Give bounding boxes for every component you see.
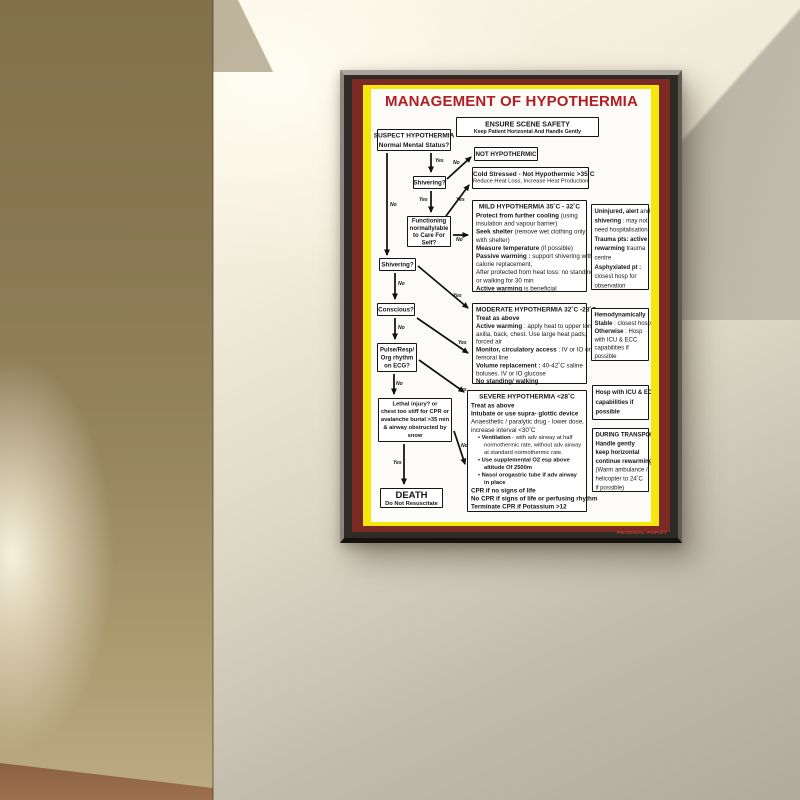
text-line: on ECG? bbox=[384, 362, 410, 370]
edge-label: No bbox=[390, 202, 397, 208]
room-photo: MANAGEMENT OF HYPOTHERMIA bbox=[0, 0, 800, 800]
publisher-credit: PRODIGAL-POPIST bbox=[617, 530, 667, 536]
text-line: closest hosp for bbox=[595, 272, 646, 281]
text-line: Active warming is beneficial bbox=[476, 284, 583, 292]
text-line: Treat as above bbox=[476, 315, 583, 323]
text-line: Stable : closest hosp bbox=[595, 319, 646, 327]
edge-label: Yes bbox=[453, 293, 462, 299]
text-line: Anaesthetic / paralytic drug - lower dos… bbox=[471, 418, 583, 426]
flow-node-moderate-hypothermia: MODERATE HYPOTHERMIA 32˚C -28˚C Treat as… bbox=[472, 303, 587, 384]
left-wall bbox=[0, 0, 213, 800]
flow-node-cold-stressed: Cold Stressed - Not Hypothermic >35˚C Re… bbox=[472, 167, 589, 189]
text-line: & airway obstructed by bbox=[383, 424, 446, 432]
text-line: centre bbox=[595, 253, 646, 262]
node-title: NOT HYPOTHERMIC bbox=[475, 151, 536, 158]
node-title: ENSURE SCENE SAFETY bbox=[485, 120, 570, 129]
node-body: Treat as aboveIntubate or use supra- glo… bbox=[471, 402, 583, 511]
corner-shadow bbox=[213, 0, 313, 72]
flow-node-death: DEATH Do Not Resuscitate bbox=[380, 488, 443, 508]
side-note-uninjured-alert: Uninjured, alert andshivering : may notn… bbox=[591, 204, 649, 290]
text-line: normothermic rate, without adv airway bbox=[471, 441, 583, 449]
text-line: After protected from heat loss: no stand… bbox=[476, 268, 583, 276]
flow-node-mild-hypothermia: MILD HYPOTHERMIA 35˚C - 32˚C Protect fro… bbox=[472, 200, 587, 292]
text-line: increase interval <30˚C bbox=[471, 426, 583, 434]
text-line: Lethal injury? or bbox=[392, 400, 437, 408]
flow-node-pulse-resp-ecg: Pulse/Resp/Org rhythmon ECG? bbox=[377, 343, 417, 372]
poster-yellow-border: MANAGEMENT OF HYPOTHERMIA bbox=[363, 85, 659, 526]
text-line: CPR if no signs of life bbox=[471, 486, 583, 494]
flow-node-suspect-hypothermia: SUSPECT HYPOTHERMIANormal Mental Status? bbox=[377, 129, 451, 151]
flow-node-shivering-1: Shivering? bbox=[413, 176, 446, 189]
node-title: Cold Stressed - Not Hypothermic >35˚C bbox=[473, 170, 588, 179]
flow-node-functioning-normally: Functioningnormally/ableto Care ForSelf? bbox=[407, 216, 451, 247]
node-subtitle: Reduce Heat Loss, Increase Heat Producti… bbox=[473, 178, 588, 184]
text-line: No CPR if signs of life or perfusing rhy… bbox=[471, 495, 583, 503]
text-line: Treat as above bbox=[471, 402, 583, 410]
text-line: chest too stiff for CPR or bbox=[381, 408, 449, 416]
wall-corner bbox=[212, 0, 214, 800]
text-line: Pulse/Resp/ bbox=[380, 346, 414, 354]
text-line: Self? bbox=[422, 239, 437, 246]
edge-label: No bbox=[398, 281, 405, 287]
text-line: Seek shelter (remove wet clothing only bbox=[476, 228, 583, 236]
text-line: Hemodynamically bbox=[595, 311, 646, 319]
text-line: Uninjured, alert and bbox=[595, 207, 646, 216]
node-title: DEATH bbox=[395, 490, 427, 501]
hypothermia-flowchart: MANAGEMENT OF HYPOTHERMIA bbox=[372, 91, 651, 519]
text-line: at standard normothermic rate. bbox=[471, 449, 583, 457]
node-body: Treat as aboveActive warming : apply hea… bbox=[476, 315, 583, 386]
text-line: Asphyxiated pt : bbox=[595, 262, 646, 271]
text-line: Passive warming : support shivering with bbox=[476, 252, 583, 260]
poster-frame: MANAGEMENT OF HYPOTHERMIA bbox=[340, 70, 682, 543]
text-line: Use supplemental O2 esp above bbox=[471, 456, 583, 464]
text-line: Handle gently bbox=[596, 439, 646, 448]
flow-node-conscious: Conscious? bbox=[377, 303, 415, 316]
node-subtitle: Do Not Resuscitate bbox=[385, 500, 438, 506]
flow-node-ensure-scene-safety: ENSURE SCENE SAFETY Keep Patient Horizon… bbox=[456, 117, 599, 137]
text-line: Hosp with ICU & ECC bbox=[596, 388, 646, 398]
text-line: normally/able bbox=[410, 224, 449, 231]
edge-label: Yes bbox=[456, 197, 465, 203]
edge-label: No bbox=[456, 237, 463, 243]
edge-label: No bbox=[398, 325, 405, 331]
text-line: Terminate CPR if Potassium >12 bbox=[471, 503, 583, 511]
text-line: forced air bbox=[476, 338, 583, 346]
text-line: calorie replacement, bbox=[476, 260, 583, 268]
text-line: rewarming trauma bbox=[595, 244, 646, 253]
edge-label: Yes bbox=[435, 158, 444, 164]
node-title: Conscious? bbox=[378, 306, 414, 313]
text-line: continue rewarming bbox=[596, 457, 646, 466]
text-line: helicopter to 24˚C bbox=[596, 474, 646, 483]
node-body: Protect from further cooling (usinginsul… bbox=[476, 212, 583, 293]
flow-node-severe-hypothermia: SEVERE HYPOTHERMIA <28˚C Treat as aboveI… bbox=[467, 390, 587, 512]
text-line: Trauma pts: active bbox=[595, 234, 646, 243]
text-line: shivering : may not bbox=[595, 216, 646, 225]
text-line: Intubate or use supra- glottic device bbox=[471, 410, 583, 418]
text-line: boluses. IV or IO glucose bbox=[476, 370, 583, 378]
text-line: Org rhythm bbox=[381, 354, 414, 362]
text-line: Monitor, circulatory access : IV or IO o… bbox=[476, 346, 583, 354]
text-line: insulation and vapour barrier) bbox=[476, 220, 583, 228]
edge-label: Yes bbox=[458, 387, 467, 393]
text-line: with ICU & ECC bbox=[595, 335, 646, 343]
edge-label: No bbox=[396, 381, 403, 387]
text-line: need hospitalisation bbox=[595, 225, 646, 234]
text-line: snow bbox=[408, 432, 423, 440]
text-line: Functioning bbox=[412, 217, 446, 224]
text-line: Active warming : apply heat to upper tor… bbox=[476, 322, 583, 330]
text-line: observation bbox=[595, 281, 646, 290]
text-line: to Care For bbox=[413, 232, 445, 239]
text-line: Measure temperature (if possible) bbox=[476, 244, 583, 252]
text-line: DURING TRANSPORT bbox=[596, 431, 646, 440]
poster-sheet: MANAGEMENT OF HYPOTHERMIA bbox=[371, 89, 651, 522]
text-line: Naso/ orogastric tube if adv airway bbox=[471, 471, 583, 479]
text-line: No standing/ walking bbox=[476, 378, 583, 386]
edge-label: No bbox=[461, 443, 468, 449]
side-note-hemodynamically-stable: HemodynamicallyStable : closest hospOthe… bbox=[591, 308, 649, 361]
side-note-hosp-icu-ecc: Hosp with ICU & ECCcapabilities ifpossib… bbox=[592, 385, 649, 420]
text-line: Otherwise : Hosp bbox=[595, 327, 646, 335]
node-title: SEVERE HYPOTHERMIA <28˚C bbox=[471, 392, 583, 401]
text-line: altitude Of 2500m bbox=[471, 464, 583, 472]
hypothermia-poster: MANAGEMENT OF HYPOTHERMIA bbox=[340, 70, 682, 543]
text-line: with shelter) bbox=[476, 236, 583, 244]
flow-node-not-hypothermic: NOT HYPOTHERMIC bbox=[474, 147, 538, 161]
poster-maroon-border: MANAGEMENT OF HYPOTHERMIA bbox=[352, 79, 670, 532]
text-line: SUSPECT HYPOTHERMIA bbox=[374, 131, 455, 141]
text-line: possible bbox=[595, 352, 646, 360]
text-line: avalanche burial >35 min bbox=[381, 416, 449, 424]
node-title: Shivering? bbox=[413, 179, 445, 186]
edge-label: Yes bbox=[393, 460, 402, 466]
text-line: or walking for 30 min bbox=[476, 276, 583, 284]
edge-label: No bbox=[453, 160, 460, 166]
text-line: capabilities if bbox=[596, 397, 646, 407]
edge-label: Yes bbox=[419, 197, 428, 203]
text-line: femoral line bbox=[476, 354, 583, 362]
text-line: keep horizontal bbox=[596, 448, 646, 457]
text-line: capabilities if bbox=[595, 344, 646, 352]
text-line: if possible) bbox=[596, 483, 646, 492]
edge-label: Yes bbox=[458, 340, 467, 346]
text-line: Protect from further cooling (using bbox=[476, 212, 583, 220]
text-line: possible bbox=[596, 407, 646, 417]
flow-node-lethal-injury: Lethal injury? orchest too stiff for CPR… bbox=[378, 398, 452, 442]
text-line: axilla, back, chest. Use large heat pads… bbox=[476, 330, 583, 338]
text-line: Ventilation - with adv airway at half bbox=[471, 434, 583, 442]
side-note-during-transport: DURING TRANSPORTHandle gentlykeep horizo… bbox=[592, 428, 649, 492]
flow-node-shivering-2: Shivering? bbox=[379, 258, 416, 271]
text-line: Volume replacement : 40-42˚C saline bbox=[476, 362, 583, 370]
node-title: Shivering? bbox=[381, 261, 413, 268]
text-line: (Warm ambulance / bbox=[596, 466, 646, 475]
node-title: MILD HYPOTHERMIA 35˚C - 32˚C bbox=[476, 202, 583, 211]
text-line: in place bbox=[471, 479, 583, 487]
text-line: Normal Mental Status? bbox=[379, 140, 449, 150]
node-subtitle: Keep Patient Horizontal And Handle Gentl… bbox=[474, 129, 581, 135]
node-title: MODERATE HYPOTHERMIA 32˚C -28˚C bbox=[476, 305, 583, 314]
